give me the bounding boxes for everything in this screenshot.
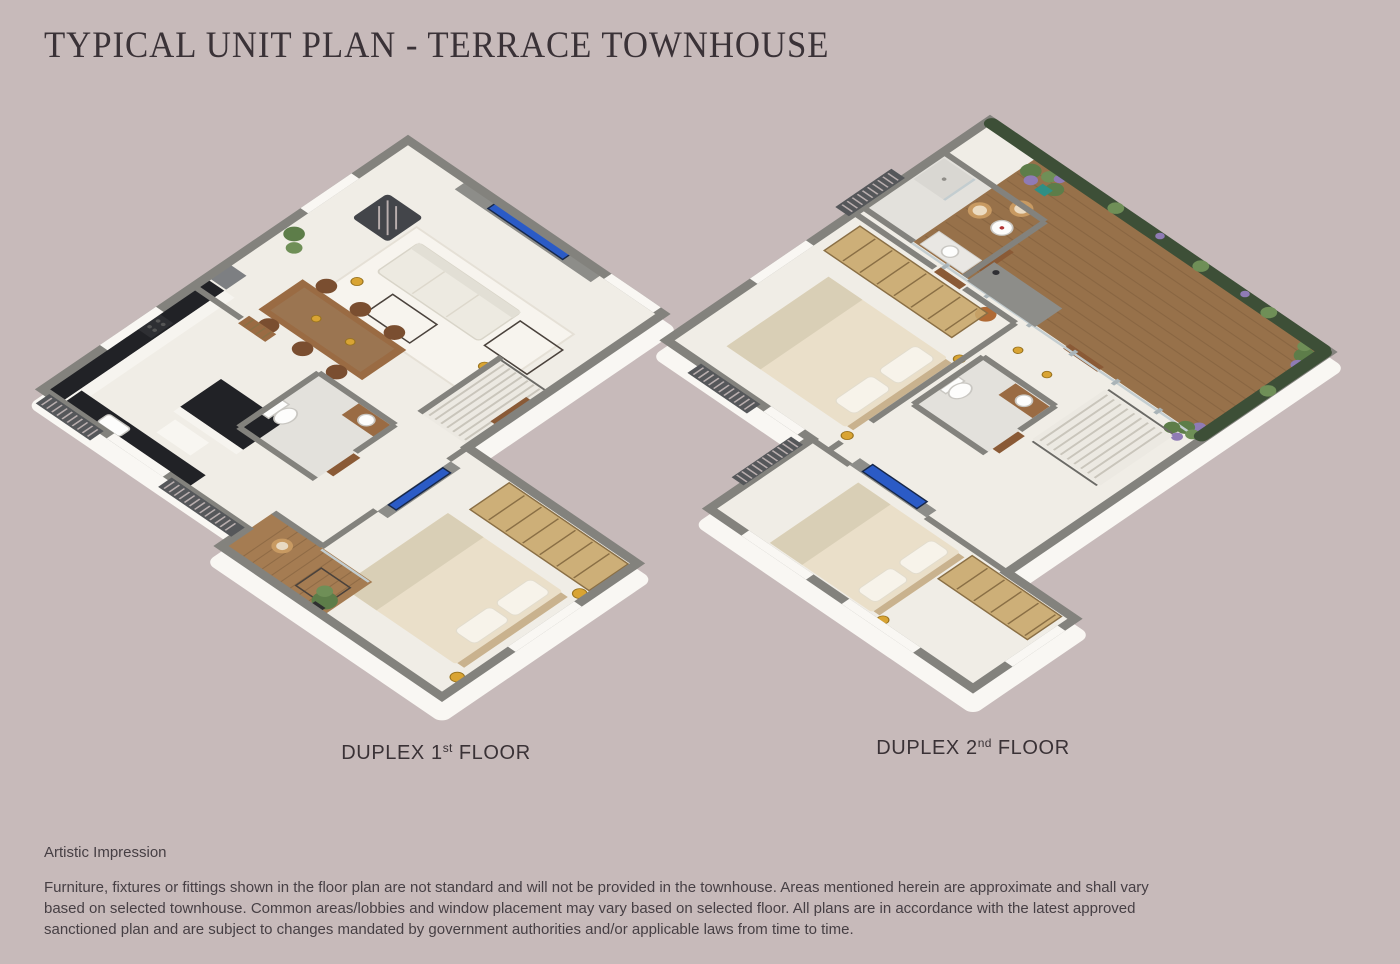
disclaimer-text: Furniture, fixtures or fittings shown in… [44,877,1374,940]
artistic-impression-note: Artistic Impression [44,844,167,861]
ordinal-superscript: st [443,741,453,755]
floorplan-duplex-2 [585,90,1385,790]
ordinal-superscript: nd [978,736,992,750]
brochure-page: { "page": { "title": "TYPICAL UNIT PLAN … [0,0,1400,964]
page-title: TYPICAL UNIT PLAN - TERRACE TOWNHOUSE [44,24,829,67]
label-duplex-1st-floor: DUPLEX 1st FLOOR [246,742,626,765]
label-duplex-2nd-floor: DUPLEX 2nd FLOOR [783,737,1163,760]
